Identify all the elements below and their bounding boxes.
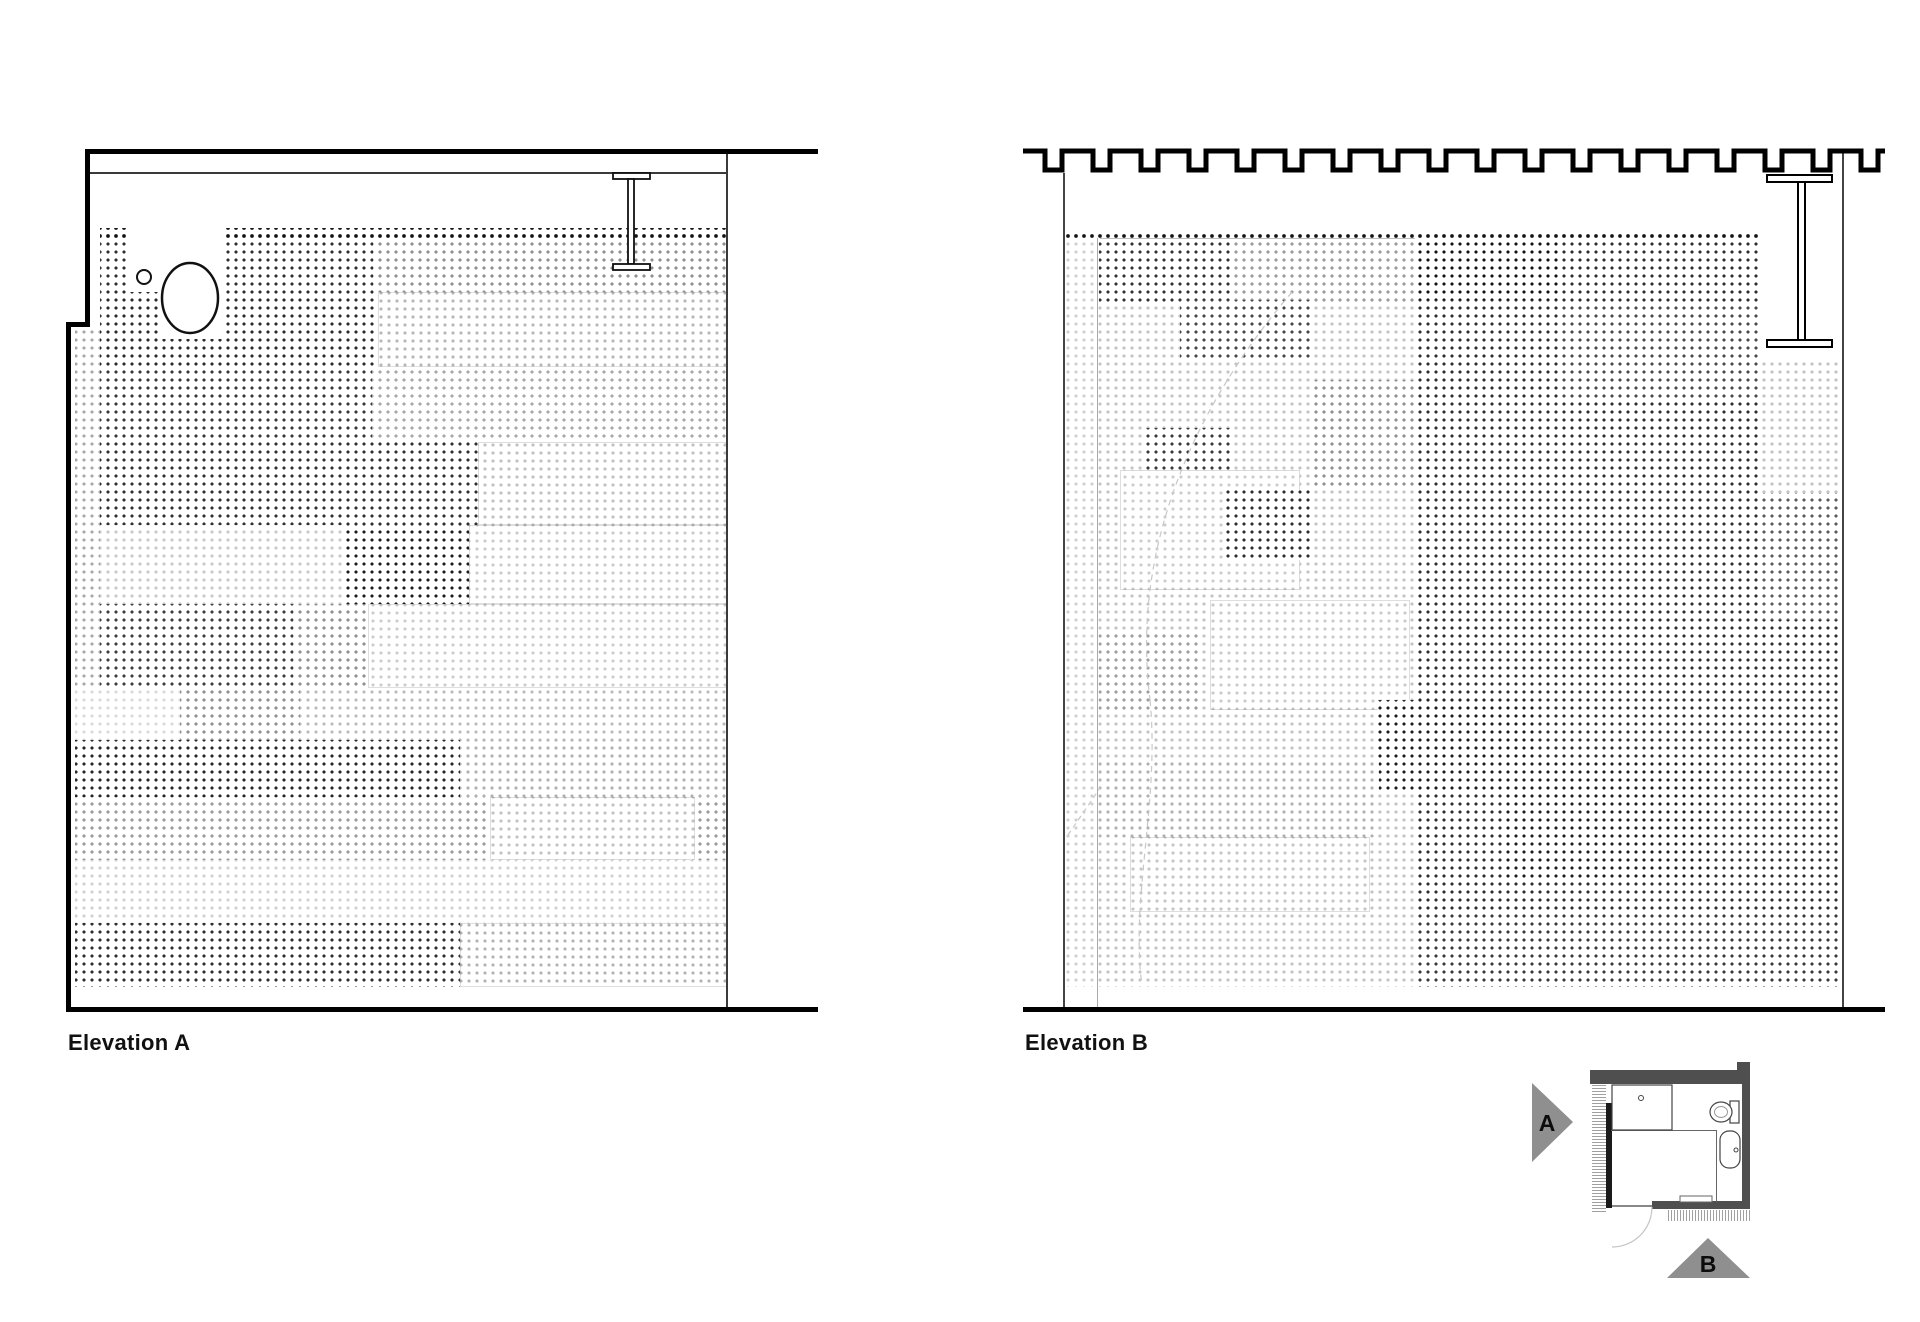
plan-wall-left	[1606, 1103, 1612, 1208]
plan-marker-b-label: B	[1695, 1251, 1721, 1278]
drawing-sheet: Elevation A Elevation B A B	[0, 0, 1920, 1322]
plan-wall-top-step	[1737, 1062, 1750, 1070]
plan-wall-right	[1742, 1084, 1750, 1208]
elevation-b-label: Elevation B	[1025, 1030, 1148, 1056]
existing-wall-hatch-left	[1592, 1085, 1606, 1213]
counter-front-line	[1611, 1130, 1717, 1131]
shower-screen-line	[1716, 1130, 1717, 1202]
plan-marker-a-label: A	[1534, 1110, 1560, 1137]
door-leaf-line	[1612, 1205, 1652, 1207]
plan-wall-bottom	[1652, 1201, 1750, 1209]
existing-wall-hatch-bottom	[1668, 1210, 1750, 1221]
plan-wall-top	[1590, 1070, 1750, 1084]
floor-plan	[0, 0, 1920, 1322]
elevation-a-label: Elevation A	[68, 1030, 190, 1056]
